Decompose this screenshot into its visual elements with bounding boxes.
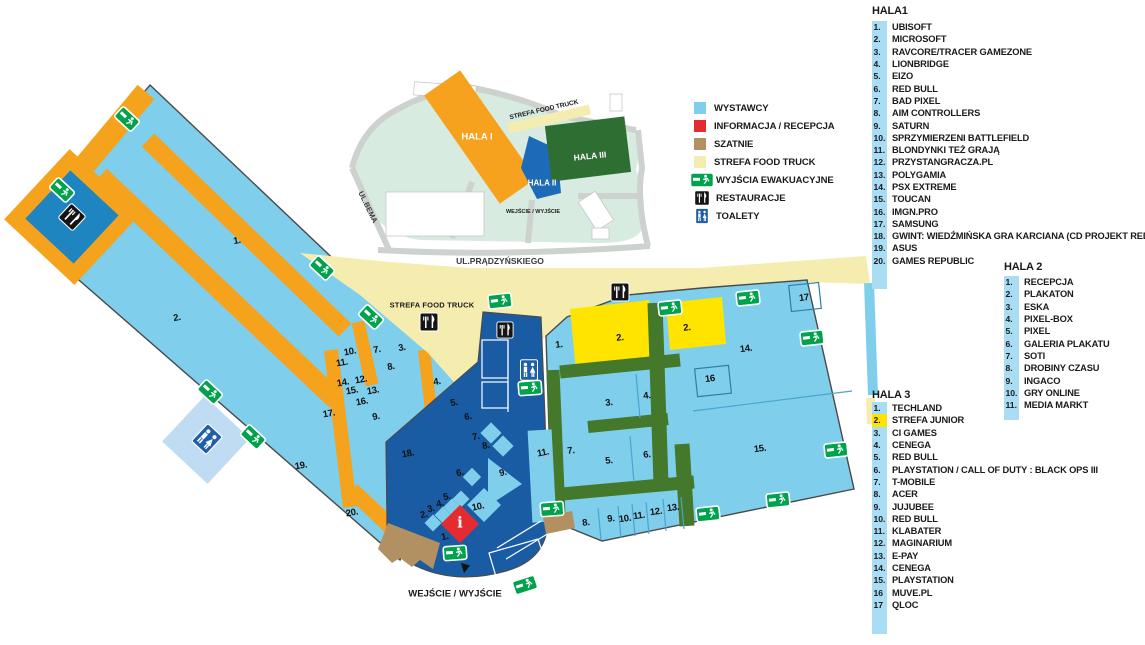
booth-number-chip: 17 <box>872 599 887 611</box>
legend-swatch <box>694 138 706 150</box>
booth-marker-hala3-5: 5. <box>605 455 614 467</box>
booth-marker-hala3-3: 3. <box>605 397 614 409</box>
overview-hala2-label: HALA II <box>528 179 557 188</box>
list-item: 10.RED BULL <box>872 513 1098 525</box>
list-item: 7.SOTI <box>1004 350 1110 362</box>
list-item: 6.PLAYSTATION / CALL OF DUTY : BLACK OPS… <box>872 463 1098 475</box>
exhibitor-name: EIZO <box>892 71 913 81</box>
overview-hala3-shape <box>545 116 631 181</box>
booth-marker-hala3-1: 1. <box>555 339 564 351</box>
exit-icon <box>658 300 682 316</box>
booth-number-chip: 2. <box>1004 288 1019 300</box>
list-item: 9.INGACO <box>1004 374 1110 386</box>
exhibitor-name: BLONDYNKI TEŻ GRAJĄ <box>892 145 1000 155</box>
restaurant-icon <box>497 322 513 338</box>
exhibitor-name: RED BULL <box>892 452 938 462</box>
restaurant-icon <box>611 283 629 301</box>
booth-number-chip: 6. <box>872 82 887 94</box>
list-item: 5.PIXEL <box>1004 325 1110 337</box>
booth-marker-hala3-8: 8. <box>582 517 591 529</box>
exhibitor-name: BAD PIXEL <box>892 96 940 106</box>
exhibitor-name: TOUCAN <box>892 194 931 204</box>
exhibitor-name: JUJUBEE <box>892 502 934 512</box>
list-item: 7.BAD PIXEL <box>872 95 1145 107</box>
list-item: 6.GALERIA PLAKATU <box>1004 337 1110 349</box>
legend-item: SZATNIE <box>694 135 835 153</box>
list-item: 13.E-PAY <box>872 550 1098 562</box>
booth-number-chip: 7. <box>1004 350 1019 362</box>
booth-number-chip: 6. <box>872 463 887 475</box>
booth-number-chip: 18. <box>872 230 887 242</box>
booth-number-chip: 15. <box>872 574 887 586</box>
list-item: 7.T-MOBILE <box>872 476 1098 488</box>
exit-icon <box>512 575 538 595</box>
list-item: 16MUVE.PL <box>872 586 1098 598</box>
overview-map <box>352 70 650 252</box>
exhibitor-name: CENEGA <box>892 440 931 450</box>
booth-number-chip: 13. <box>872 169 887 181</box>
legend-item: INFORMACJA / RECEPCJA <box>694 117 835 135</box>
booth-number-chip: 12. <box>872 537 887 549</box>
hala3-list: 1.TECHLAND2.STREFA JUNIOR3.CI GAMES4.CEN… <box>872 402 1098 611</box>
exhibitor-name: MUVE.PL <box>892 588 932 598</box>
booth-number-chip: 1. <box>1004 276 1019 288</box>
exhibitor-name: GALERIA PLAKATU <box>1024 339 1110 349</box>
booth-number-chip: 7. <box>872 95 887 107</box>
booth-marker-hala3-11: 11. <box>632 510 645 522</box>
booth-number-chip: 9. <box>1004 374 1019 386</box>
list-item: 2.MICROSOFT <box>872 33 1145 45</box>
exit-icon <box>824 442 848 458</box>
exit-icon <box>540 501 564 517</box>
list-item: 16.IMGN.PRO <box>872 205 1145 217</box>
booth-number-chip: 19. <box>872 242 887 254</box>
booth-marker-hala1-16: 16. <box>355 396 369 409</box>
legend-label: TOALETY <box>716 211 759 222</box>
hala1-list-title: HALA1 <box>872 5 908 17</box>
exhibitor-name: CENEGA <box>892 563 931 573</box>
booth-marker-hala3-6: 6. <box>643 449 652 461</box>
list-item: 6.RED BULL <box>872 82 1145 94</box>
booth-number-chip: 6. <box>1004 337 1019 349</box>
list-item: 18.GWINT: WIEDŹMIŃSKA GRA KARCIANA (CD P… <box>872 230 1145 242</box>
exit-icon <box>488 293 512 309</box>
legend-item: STREFA FOOD TRUCK <box>694 153 835 171</box>
legend-item: RESTAURACJE <box>694 189 835 207</box>
exhibitor-name: POLYGAMIA <box>892 170 946 180</box>
booth-number-chip: 13. <box>872 550 887 562</box>
exit-icon <box>766 492 790 508</box>
booth-number-chip: 2. <box>872 414 887 426</box>
booth-marker-hala3-2: 2. <box>616 332 625 344</box>
booth-number-chip: 7. <box>872 476 887 488</box>
booth-number-chip: 1. <box>872 21 887 33</box>
exit-icon <box>690 172 714 188</box>
floorplan-page: HALA I HALA II HALA III STREFA FOOD TRUC… <box>0 0 1145 645</box>
exhibitor-name: INGACO <box>1024 376 1060 386</box>
legend-item: WYJŚCIA EWAKUACYJNE <box>694 171 835 189</box>
exhibitor-name: STREFA JUNIOR <box>892 415 964 425</box>
exhibitor-name: PRZYSTANGRACZA.PL <box>892 157 993 167</box>
exhibitor-name: PLAYSTATION <box>892 575 954 585</box>
list-item: 3.RAVCORE/TRACER GAMEZONE <box>872 46 1145 58</box>
exhibitor-name: KLABATER <box>892 526 941 536</box>
exhibitor-name: QLOC <box>892 600 918 610</box>
list-item: 12.MAGINARIUM <box>872 537 1098 549</box>
exhibitor-name: GRY ONLINE <box>1024 388 1080 398</box>
exhibitor-name: ESKA <box>1024 302 1049 312</box>
booth-marker-hala1-17: 17. <box>322 408 336 421</box>
restaurant-icon <box>690 190 714 206</box>
exhibitor-name: GAMES REPUBLIC <box>892 256 974 266</box>
booth-number-chip: 4. <box>872 58 887 70</box>
hala2-list: 1.RECEPCJA2.PLAKATON3.ESKA4.PIXEL-BOX5.P… <box>1004 276 1110 411</box>
booth-number-chip: 3. <box>872 427 887 439</box>
list-item: 5.RED BULL <box>872 451 1098 463</box>
booth-marker-hala3-2: 2. <box>683 322 692 334</box>
restaurant-icon <box>420 313 438 331</box>
exhibitor-name: AIM CONTROLLERS <box>892 108 980 118</box>
exhibitor-name: PIXEL <box>1024 326 1050 336</box>
booth-number-chip: 14. <box>872 562 887 574</box>
booth-number-chip: 20. <box>872 255 887 267</box>
booth-number-chip: 10. <box>1004 387 1019 399</box>
exhibitor-name: T-MOBILE <box>892 477 935 487</box>
list-item: 1.RECEPCJA <box>1004 276 1110 288</box>
booth-marker-hala3-16: 16 <box>704 373 715 385</box>
toilet-icon <box>690 208 714 224</box>
exhibitor-name: CI GAMES <box>892 428 937 438</box>
exhibitor-name: DROBINY CZASU <box>1024 363 1099 373</box>
list-item: 12.PRZYSTANGRACZA.PL <box>872 156 1145 168</box>
exhibitor-name: TECHLAND <box>892 403 942 413</box>
exhibitor-name: PIXEL-BOX <box>1024 314 1073 324</box>
legend-swatch <box>694 102 706 114</box>
overview-hala1-label: HALA I <box>461 132 492 143</box>
food-zone-label: STREFA FOOD TRUCK <box>390 301 475 310</box>
list-item: 10.GRY ONLINE <box>1004 387 1110 399</box>
booth-marker-hala3-7: 7. <box>567 445 576 457</box>
booth-marker-hala3-12: 12. <box>649 506 663 518</box>
exhibitor-name: PSX EXTREME <box>892 182 956 192</box>
exhibitor-name: E-PAY <box>892 551 918 561</box>
booth-marker-hala3-14: 14. <box>739 343 753 355</box>
legend-swatch <box>694 120 706 132</box>
hall3-floor <box>546 280 854 541</box>
list-item: 14.CENEGA <box>872 562 1098 574</box>
street-pradzynskiego-label: UL.PRĄDZYŃSKIEGO <box>456 256 544 266</box>
legend-label: STREFA FOOD TRUCK <box>714 157 815 168</box>
exhibitor-name: SATURN <box>892 121 929 131</box>
list-item: 14.PSX EXTREME <box>872 181 1145 193</box>
exit-icon <box>696 506 720 522</box>
overview-entrance-label: WEJŚCIE / WYJŚCIE <box>506 209 560 215</box>
hala2-list-title: HALA 2 <box>1004 261 1042 273</box>
booth-marker-hala1-20: 20. <box>345 507 359 520</box>
booth-number-chip: 14. <box>872 181 887 193</box>
list-item: 2.STREFA JUNIOR <box>872 414 1098 426</box>
list-item: 4.LIONBRIDGE <box>872 58 1145 70</box>
list-item: 5.EIZO <box>872 70 1145 82</box>
booth-number-chip: 10. <box>872 513 887 525</box>
legend-label: RESTAURACJE <box>716 193 785 204</box>
entrance-label: WEJŚCIE / WYJŚCIE <box>408 589 501 600</box>
list-item: 3.CI GAMES <box>872 427 1098 439</box>
exhibitor-name: SOTI <box>1024 351 1045 361</box>
exhibitor-name: IMGN.PRO <box>892 207 938 217</box>
list-item: 13.POLYGAMIA <box>872 169 1145 181</box>
booth-number-chip: 2. <box>872 33 887 45</box>
booth-marker-hala3-13: 13. <box>666 502 680 514</box>
exhibitor-name: UBISOFT <box>892 22 932 32</box>
list-item: 15.TOUCAN <box>872 193 1145 205</box>
info-point-symbol: i <box>457 514 463 532</box>
booth-number-chip: 16. <box>872 205 887 217</box>
booth-marker-hala1-15: 15. <box>345 385 359 398</box>
booth-number-chip: 1. <box>872 402 887 414</box>
list-item: 11.KLABATER <box>872 525 1098 537</box>
exhibitor-name: SPRZYMIERZENI BATTLEFIELD <box>892 133 1029 143</box>
legend-label: WYJŚCIA EWAKUACYJNE <box>716 175 834 186</box>
booth-number-chip: 17. <box>872 218 887 230</box>
list-item: 9.SATURN <box>872 119 1145 131</box>
legend: WYSTAWCYINFORMACJA / RECEPCJASZATNIESTRE… <box>694 99 835 225</box>
exhibitor-name: ASUS <box>892 243 917 253</box>
exhibitor-name: PLAKATON <box>1024 289 1074 299</box>
hala3-list-title: HALA 3 <box>872 389 910 401</box>
list-item: 17.SAMSUNG <box>872 218 1145 230</box>
booth-number-chip: 4. <box>872 439 887 451</box>
booth-marker-hala1-13: 13. <box>366 385 380 398</box>
list-item: 8.AIM CONTROLLERS <box>872 107 1145 119</box>
legend-label: INFORMACJA / RECEPCJA <box>714 121 835 132</box>
exhibitor-name: ACER <box>892 489 918 499</box>
booth-marker-hala3-15: 15. <box>753 443 767 455</box>
list-item: 4.PIXEL-BOX <box>1004 313 1110 325</box>
exhibitor-name: RED BULL <box>892 84 938 94</box>
list-item: 4.CENEGA <box>872 439 1098 451</box>
booth-number-chip: 5. <box>1004 325 1019 337</box>
booth-marker-hala3-4: 4. <box>643 390 652 402</box>
list-item: 1.UBISOFT <box>872 21 1145 33</box>
list-item: 1.TECHLAND <box>872 402 1098 414</box>
exhibitor-name: SAMSUNG <box>892 219 938 229</box>
exhibitor-name: RECEPCJA <box>1024 277 1073 287</box>
booth-number-chip: 16 <box>872 586 887 598</box>
list-item: 15.PLAYSTATION <box>872 574 1098 586</box>
legend-item: WYSTAWCY <box>694 99 835 117</box>
exhibitor-name: RED BULL <box>892 514 938 524</box>
booth-number-chip: 12. <box>872 156 887 168</box>
exit-icon <box>800 330 824 346</box>
booth-number-chip: 11. <box>872 525 887 537</box>
exhibitor-name: RAVCORE/TRACER GAMEZONE <box>892 47 1032 57</box>
list-item: 10.SPRZYMIERZENI BATTLEFIELD <box>872 132 1145 144</box>
booth-marker-hala3-9: 9. <box>607 513 616 525</box>
exhibitor-name: MAGINARIUM <box>892 538 952 548</box>
booth-number-chip: 10. <box>872 132 887 144</box>
booth-number-chip: 4. <box>1004 313 1019 325</box>
booth-marker-hala3-10: 10. <box>618 513 632 525</box>
list-item: 8.ACER <box>872 488 1098 500</box>
booth-number-chip: 5. <box>872 70 887 82</box>
list-item: 9.JUJUBEE <box>872 500 1098 512</box>
list-item: 19.ASUS <box>872 242 1145 254</box>
toilet-icon <box>521 360 538 380</box>
booth-marker-hala1-19: 19. <box>294 460 308 473</box>
list-item: 2.PLAKATON <box>1004 288 1110 300</box>
booth-marker-hala1-18: 18. <box>401 448 415 461</box>
exhibitor-name: PLAYSTATION / CALL OF DUTY : BLACK OPS I… <box>892 465 1098 475</box>
list-item: 11.BLONDYNKI TEŻ GRAJĄ <box>872 144 1145 156</box>
hala1-list: 1.UBISOFT2.MICROSOFT3.RAVCORE/TRACER GAM… <box>872 21 1145 267</box>
legend-label: WYSTAWCY <box>714 103 768 114</box>
legend-item: TOALETY <box>694 207 835 225</box>
legend-swatch <box>694 156 706 168</box>
list-item: 8.DROBINY CZASU <box>1004 362 1110 374</box>
booth-number-chip: 3. <box>872 46 887 58</box>
booth-number-chip: 5. <box>872 451 887 463</box>
booth-number-chip: 15. <box>872 193 887 205</box>
exhibitor-name: GWINT: WIEDŹMIŃSKA GRA KARCIANA (CD PROJ… <box>892 231 1145 241</box>
booth-number-chip: 9. <box>872 500 887 512</box>
exit-icon <box>736 290 760 306</box>
legend-label: SZATNIE <box>714 139 753 150</box>
booth-number-chip: 3. <box>1004 301 1019 313</box>
list-item: 3.ESKA <box>1004 301 1110 313</box>
booth-number-chip: 9. <box>872 119 887 131</box>
booth-number-chip: 8. <box>872 488 887 500</box>
booth-marker-hala3-17: 17 <box>798 292 809 304</box>
exhibitor-name: MICROSOFT <box>892 34 946 44</box>
list-item: 17QLOC <box>872 599 1098 611</box>
exhibitor-name: LIONBRIDGE <box>892 59 949 69</box>
booth-number-chip: 8. <box>1004 362 1019 374</box>
booth-marker-hala1-11: 11. <box>335 357 349 370</box>
booth-number-chip: 8. <box>872 107 887 119</box>
side-strip-blue <box>864 283 878 395</box>
booth-number-chip: 11. <box>872 144 887 156</box>
exit-icon <box>518 380 542 396</box>
exit-icon <box>443 545 467 561</box>
